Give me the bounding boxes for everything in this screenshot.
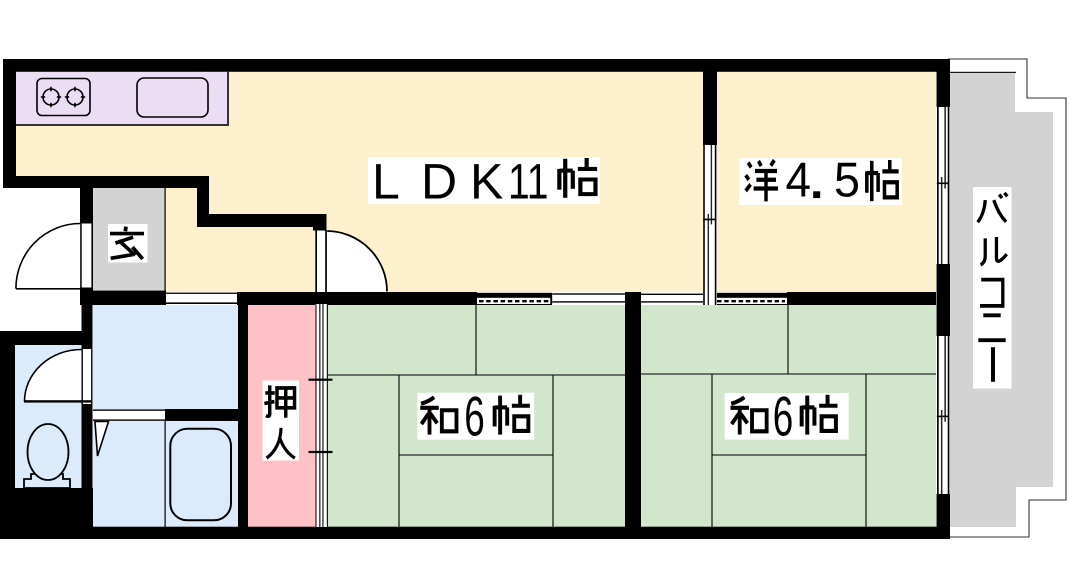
svg-text:L: L	[372, 154, 400, 210]
svg-text:6: 6	[773, 384, 794, 447]
svg-text:4: 4	[786, 153, 812, 207]
svg-text:11: 11	[508, 154, 549, 210]
svg-text:6: 6	[464, 384, 485, 447]
svg-text:K: K	[470, 154, 503, 210]
svg-text:5: 5	[834, 153, 860, 207]
svg-text:D: D	[421, 154, 457, 210]
